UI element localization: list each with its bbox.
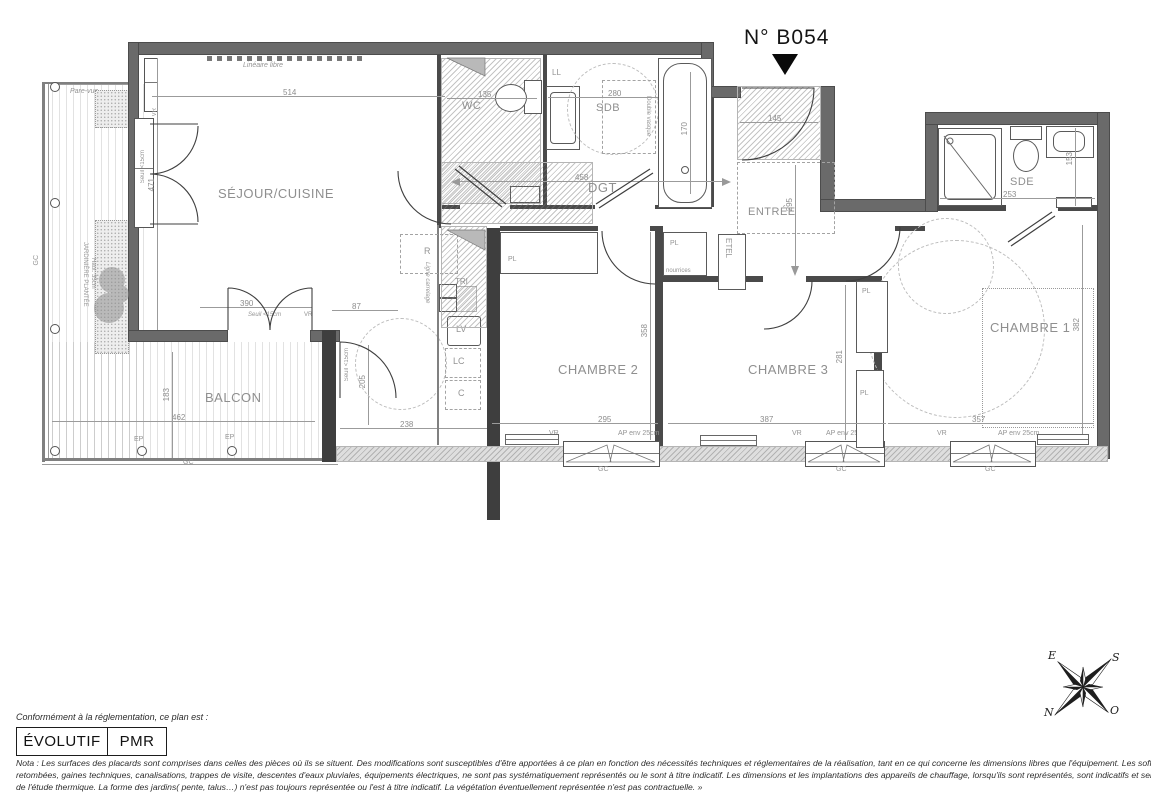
door-arc	[846, 227, 900, 281]
compass-rose	[1029, 633, 1136, 740]
arrowhead	[722, 178, 731, 186]
legend-boxes: ÉVOLUTIF PMR	[16, 727, 167, 756]
door-arc	[398, 171, 451, 224]
nota-line-2: retombées, gaines techniques, canalisati…	[16, 769, 1151, 781]
window-opening-triangles	[566, 445, 1031, 462]
plan-linework	[0, 0, 1151, 800]
shower-diagonal	[944, 136, 992, 198]
door-arc	[602, 231, 655, 284]
door-arc	[764, 281, 812, 329]
arrowhead	[791, 266, 799, 276]
compass-n: N	[1044, 706, 1054, 719]
legend-pmr: PMR	[107, 728, 166, 755]
dimension-arrowheads	[451, 178, 799, 276]
door-arc	[150, 126, 198, 174]
arrowhead	[451, 178, 460, 186]
door-arc	[150, 174, 198, 222]
pivot-door	[596, 169, 653, 208]
corner-cabinets	[447, 58, 485, 250]
legend-caption: Conformément à la réglementation, ce pla…	[16, 712, 208, 722]
floor-plan-page: N° B054 Pare-vue GC GC EP EP JARDINIÈRE …	[0, 0, 1151, 800]
plant-blob	[111, 285, 129, 303]
entrance-marker-triangle	[772, 54, 798, 75]
compass-e: E	[1048, 649, 1056, 662]
window-sash-triangles	[566, 445, 655, 462]
pivot-door	[1008, 212, 1055, 246]
cabinet-triangle	[447, 58, 485, 76]
compass-s: S	[1112, 651, 1120, 664]
door-arc	[228, 288, 270, 330]
cabinet-triangle	[447, 230, 485, 250]
compass-arm-s	[1079, 655, 1114, 690]
shower-symbol	[944, 136, 992, 198]
legend-evolutif: ÉVOLUTIF	[17, 728, 107, 755]
pivot-door	[455, 166, 506, 207]
door-arcs	[150, 88, 900, 398]
window-sash-triangles	[808, 445, 880, 462]
compass-arm-n	[1051, 683, 1086, 718]
plant-symbol	[94, 267, 129, 323]
window-sash-triangles	[953, 445, 1031, 462]
door-arc	[270, 288, 312, 330]
door-arc	[340, 342, 396, 398]
pivot-door-symbols	[455, 166, 1055, 246]
entrance-door-arc	[742, 88, 814, 160]
nota-line-1: Nota : Les surfaces des placards sont co…	[16, 757, 1151, 769]
compass-o: O	[1110, 704, 1119, 717]
nota-line-3: de l'étude thermique. La forme des jardi…	[16, 781, 702, 793]
